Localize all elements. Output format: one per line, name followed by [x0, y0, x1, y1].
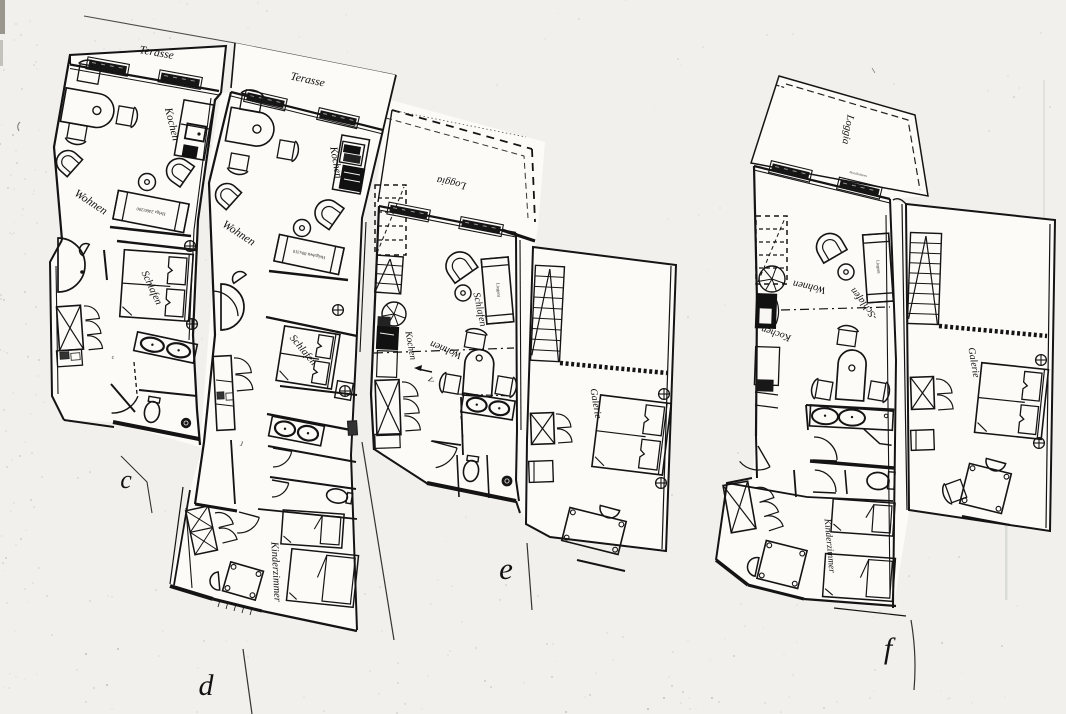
svg-text:e: e	[499, 551, 513, 586]
svg-text:d: d	[199, 669, 215, 702]
svg-text:c: c	[120, 465, 132, 494]
svg-text:c: c	[112, 355, 115, 361]
